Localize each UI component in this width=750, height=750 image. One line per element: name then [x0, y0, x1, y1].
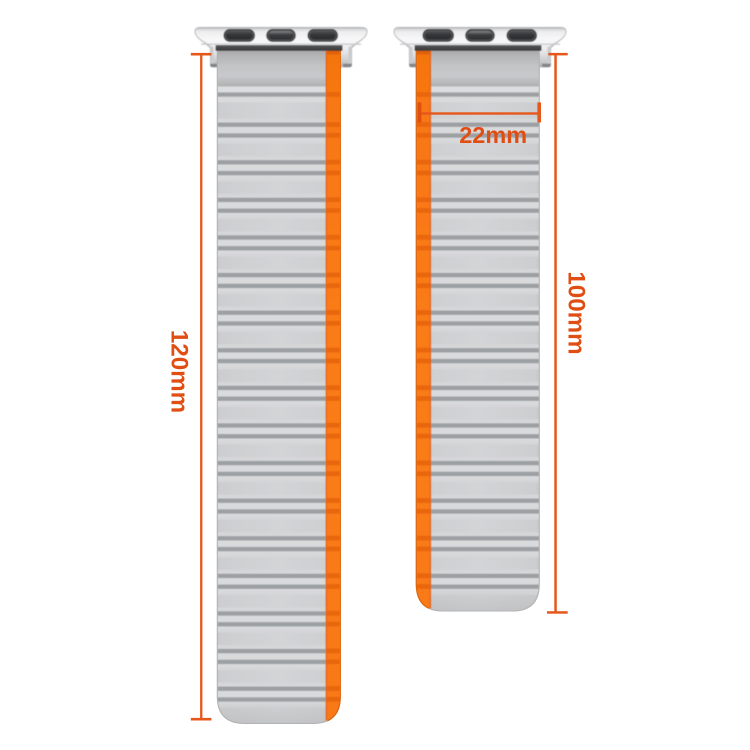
svg-text:22mm: 22mm [459, 122, 527, 148]
svg-text:100mm: 100mm [562, 271, 589, 354]
svg-text:120mm: 120mm [165, 330, 192, 413]
